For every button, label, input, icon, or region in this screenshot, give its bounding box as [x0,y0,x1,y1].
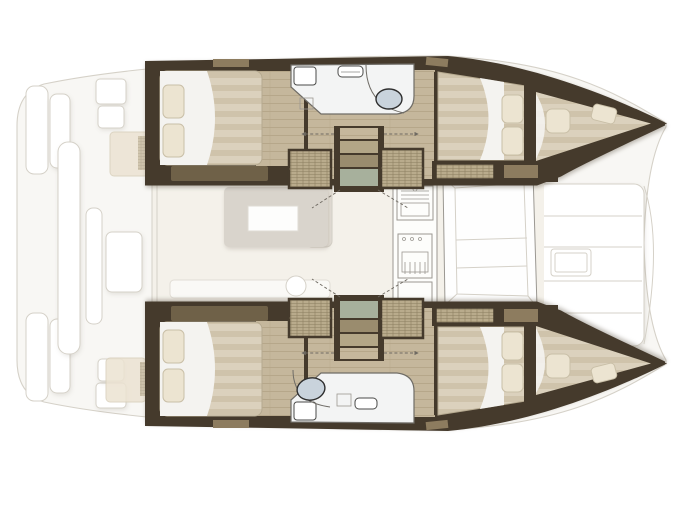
toilet [355,398,377,409]
saloon [152,172,544,310]
wash-basin [376,89,402,109]
cockpit-table [106,232,142,292]
transom-step [96,79,126,104]
toilet [338,66,363,77]
transom-platform [26,313,48,401]
table-placemat [248,206,298,231]
cockpit-bench [86,208,102,324]
saloon-stool [286,276,306,296]
dining-table [224,187,328,247]
floor-plan-drawing [0,0,700,524]
transom-platform [26,86,48,174]
cockpit-bench [58,142,80,354]
forward-sofa [443,172,537,307]
transom-step [98,106,124,128]
galley [393,183,437,309]
catamaran-floor-plan [0,0,700,524]
